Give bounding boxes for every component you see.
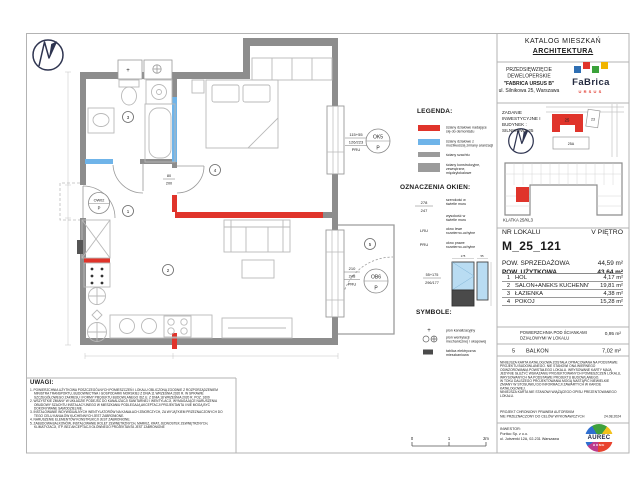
unit-nr-label: NR LOKALU xyxy=(502,229,541,236)
svg-text:NIE PRZEZNACZONY DO CELÓW WYKO: NIE PRZEZNACZONY DO CELÓW WYKONAWCZYCH xyxy=(500,414,585,419)
electric-board-icon xyxy=(77,240,83,254)
rooms-table: 1 HOL 4,17 m² 2 SALON+ANEKS KUCHENNY 19,… xyxy=(502,273,623,306)
svg-text:0,95 m²: 0,95 m² xyxy=(605,331,622,337)
svg-text:ściany szachtu: ściany szachtu xyxy=(446,153,470,157)
uwagi-title: UWAGI: xyxy=(30,380,54,386)
floor-plan: + xyxy=(60,38,394,359)
svg-text:55+175: 55+175 xyxy=(426,273,439,277)
svg-text:2m: 2m xyxy=(483,436,489,441)
svg-text:DZIAŁOWYMI W LOKALU: DZIAŁOWYMI W LOKALU xyxy=(520,336,569,341)
svg-text:OW02: OW02 xyxy=(94,199,105,203)
discipline-title: ARCHITEKTURA xyxy=(497,48,629,55)
fabrica-wordmark: FaBrica xyxy=(564,78,618,88)
svg-text:1: 1 xyxy=(448,436,451,441)
svg-text:7,02 m²: 7,02 m² xyxy=(602,349,621,355)
unit-number: M_25_121 xyxy=(502,239,623,253)
electric-board-symbol-icon xyxy=(423,350,433,355)
unit-floor: V PIĘTRO xyxy=(591,229,623,236)
legend-swatch-shaft xyxy=(418,152,440,157)
svg-text:PRZEDSIĘWZIĘCIE: PRZEDSIĘWZIĘCIE xyxy=(506,67,553,73)
partition-area-note: POWIERZCHNIA POD ŚCIANKAMI DZIAŁOWYMI W … xyxy=(520,330,621,341)
svg-text:świetle muru: świetle muru xyxy=(446,202,466,206)
catalog-sheet: + xyxy=(0,0,640,480)
balcony-row: 5 BALKON 7,02 m² xyxy=(512,349,621,355)
legend-items: ściany działowe nadające się do demontaż… xyxy=(418,125,493,175)
svg-text:OB6: OB6 xyxy=(371,275,381,281)
svg-text:25: 25 xyxy=(565,118,570,123)
copyright: PROJEKT CHRONIONY PRAWEM AUTORSKIM NIE P… xyxy=(500,410,621,419)
vent-symbol-icon xyxy=(423,336,437,342)
svg-text:0: 0 xyxy=(411,436,414,441)
svg-text:SILNIKOWA 25: SILNIKOWA 25 xyxy=(502,128,534,133)
fabrica-sub: URSUS xyxy=(564,89,618,94)
pow-sprzedazowa-value: 44,59 m² xyxy=(598,260,623,267)
site-map: 25 23 25A xyxy=(546,104,624,157)
investor: INWESTOR: Portico Sp. z o.o. ul. Jutrzen… xyxy=(500,427,560,441)
svg-text:Portico Sp. z o.o.: Portico Sp. z o.o. xyxy=(500,432,528,436)
svg-text:LOKALU.: LOKALU. xyxy=(500,394,514,398)
svg-text:247: 247 xyxy=(421,208,428,213)
svg-text:pion kanalizacyjny: pion kanalizacyjny xyxy=(446,329,475,333)
svg-text:"FABRICA URSUS B": "FABRICA URSUS B" xyxy=(504,81,555,87)
svg-text:BUDYNEK :: BUDYNEK : xyxy=(502,122,527,127)
task-text: ZADANIE INWESTYCYJNE I BUDYNEK : SILNIKO… xyxy=(502,110,541,133)
pow-sprzedazowa-label: POW. SPRZEDAŻOWA xyxy=(502,260,570,267)
symbols-title: SYMBOLE: xyxy=(416,309,452,316)
svg-text:INWESTOR:: INWESTOR: xyxy=(500,427,521,431)
svg-text:rozwierno-uchylne: rozwierno-uchylne xyxy=(446,245,475,249)
window-ok5-label: 115+55 126/223 PRU OK5 P xyxy=(345,129,390,153)
arrangement-walls xyxy=(85,97,177,164)
svg-text:świetle muru: świetle muru xyxy=(446,218,466,222)
svg-text:175: 175 xyxy=(461,254,466,258)
windows-key-title: OZNACZENIA OKIEN: xyxy=(400,184,470,191)
svg-text:NINIEJSZA KARTA NIE STANOWI WI: NINIEJSZA KARTA NIE STANOWI WIĄŻĄCEGO OP… xyxy=(500,389,617,394)
legend-swatch-arrangement xyxy=(418,139,440,145)
svg-text:POWIERZCHNIA POD ŚCIANKAMI: POWIERZCHNIA POD ŚCIANKAMI xyxy=(520,330,587,335)
building-overview xyxy=(505,163,622,215)
svg-text:296/177: 296/177 xyxy=(425,281,439,285)
legend-title: LEGENDA: xyxy=(417,108,453,115)
table-row: 3 ŁAZIENKA 4,38 m² xyxy=(502,290,623,298)
scale-bar: 0 1 2m xyxy=(411,436,490,446)
svg-text:210: 210 xyxy=(349,266,356,271)
sewage-symbol-icon: + xyxy=(427,328,431,334)
svg-text:ul. Jutrzenki 12A, 02-231 Wars: ul. Jutrzenki 12A, 02-231 Warszawa xyxy=(500,437,560,441)
svg-text:OK5: OK5 xyxy=(373,135,383,141)
uwagi-notes: 1. POWIERZCHNIA UŻYTKOWA POSZCZEGÓLNYCH … xyxy=(30,387,223,429)
example-window: 55+175 296/177 175 55 xyxy=(423,254,491,306)
disclaimer: NINIEJSZA KARTA KATALOGOWA ZOSTAŁA OPRAC… xyxy=(500,361,621,398)
doors xyxy=(83,163,393,309)
corridor-dashed xyxy=(60,183,80,220)
north-arrow-icon xyxy=(33,40,63,70)
symbols-list: + pion kanalizacyjny pion wentylacji mec… xyxy=(423,328,486,357)
svg-text:PROJEKT CHRONIONY PRAWEM AUTOR: PROJEKT CHRONIONY PRAWEM AUTORSKIM xyxy=(500,410,574,414)
svg-text:rozwierno-uchylne: rozwierno-uchylne xyxy=(446,231,475,235)
svg-text:PRU: PRU xyxy=(348,282,357,287)
title-block-header: KATALOG MIESZKAŃ ARCHITEKTURA xyxy=(497,38,629,55)
fabrica-logo-icon xyxy=(574,63,608,78)
svg-text:możliwością zmiany aranżacji: możliwością zmiany aranżacji xyxy=(446,144,493,148)
table-row: 2 SALON+ANEKS KUCHENNY 19,81 m² xyxy=(502,282,623,290)
klatka-label: KLATKA 25/KL3 xyxy=(503,218,534,223)
svg-text:LRU: LRU xyxy=(420,228,428,233)
svg-text:się do demontażu: się do demontażu xyxy=(446,130,474,134)
svg-text:ul. Silnikowa 25, Warszawa: ul. Silnikowa 25, Warszawa xyxy=(499,88,560,94)
legend-swatch-demolition xyxy=(418,125,440,131)
highlighted-unit xyxy=(516,187,529,202)
svg-text:INWESTYCYJNE I: INWESTYCYJNE I xyxy=(502,116,541,121)
date-label: 24.08.2024 xyxy=(604,415,621,419)
table-row: 4 POKÓJ 15,28 m² xyxy=(502,298,623,306)
svg-text:KLIMATYZACJI, ITP. BEZ AKCEPTA: KLIMATYZACJI, ITP. BEZ AKCEPTACJI GŁÓWNE… xyxy=(34,424,165,429)
cabinet-dots xyxy=(91,268,104,285)
table-row: 1 HOL 4,17 m² xyxy=(502,274,623,282)
svg-text:200: 200 xyxy=(166,182,172,186)
svg-text:mieszkaniowa: mieszkaniowa xyxy=(446,353,469,357)
svg-text:międzylokalowe: międzylokalowe xyxy=(446,171,471,175)
development-text: PRZEDSIĘWZIĘCIE DEWELOPERSKIE "FABRICA U… xyxy=(499,67,560,94)
svg-text:P: P xyxy=(98,206,101,211)
svg-text:115+55: 115+55 xyxy=(349,132,363,137)
svg-text:248: 248 xyxy=(349,274,356,279)
svg-text:PRU: PRU xyxy=(420,242,429,247)
svg-text:55: 55 xyxy=(480,254,484,258)
svg-text:ZADANIE: ZADANIE xyxy=(502,110,522,115)
unit-block: NR LOKALU V PIĘTRO M_25_121 POW. SPRZEDA… xyxy=(502,229,623,276)
svg-text:BALKON: BALKON xyxy=(526,349,549,355)
fabrica-logo: FaBrica URSUS xyxy=(564,63,618,94)
aurec-logo: AUREC HOME xyxy=(582,424,616,454)
windows-key: 278 247 szerokość w świetle muru wysokoś… xyxy=(415,198,491,306)
aurec-wordmark: AUREC xyxy=(588,435,611,441)
svg-text:278: 278 xyxy=(421,200,428,205)
legend-swatch-structural xyxy=(418,163,440,172)
aurec-sub: HOME xyxy=(582,443,616,447)
entry-door-label: OW02 P xyxy=(89,193,110,214)
svg-text:25A: 25A xyxy=(568,142,575,146)
svg-text:mechanicznej / okapowej: mechanicznej / okapowej xyxy=(446,340,486,344)
furniture xyxy=(82,58,332,342)
svg-text:23: 23 xyxy=(591,118,595,122)
svg-text:5: 5 xyxy=(512,349,515,355)
svg-text:126/223: 126/223 xyxy=(349,140,364,145)
svg-text:DEWELOPERSKIE: DEWELOPERSKIE xyxy=(507,74,551,80)
catalog-title: KATALOG MIESZKAŃ xyxy=(497,38,629,45)
balcony-door-ob6-label: 210 248 PRU OB6 P xyxy=(344,266,388,293)
door4-size-label: 80 200 xyxy=(163,174,175,186)
sewage-plus-icon: + xyxy=(126,68,130,74)
svg-text:80: 80 xyxy=(167,174,171,178)
svg-text:PRU: PRU xyxy=(352,147,361,152)
